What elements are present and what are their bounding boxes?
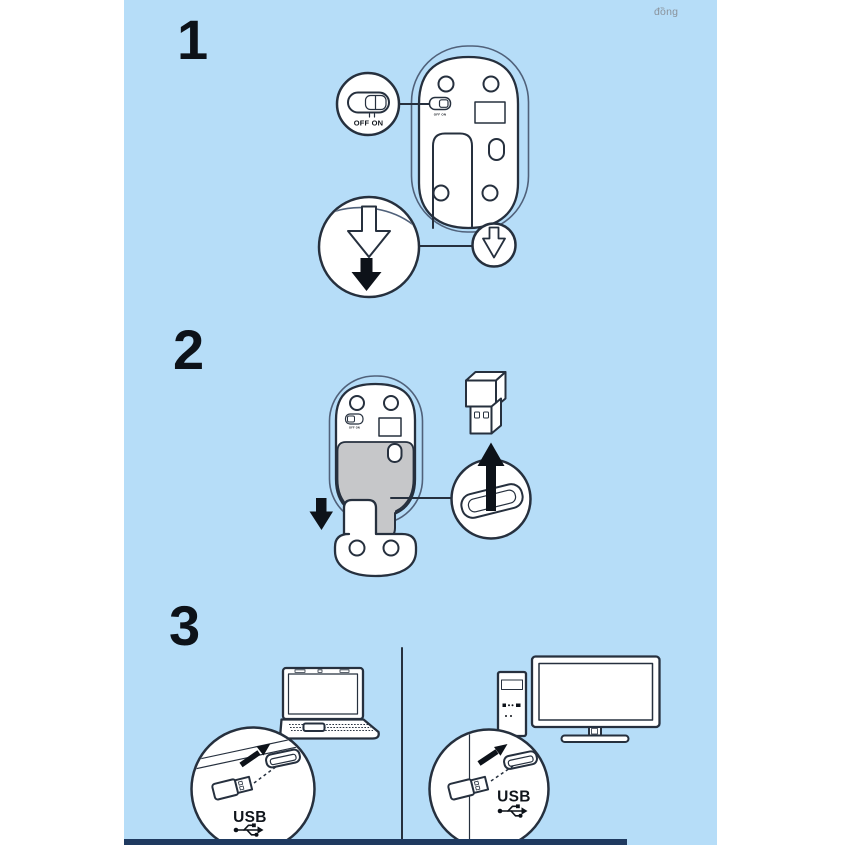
desktop-tower [498, 672, 526, 736]
desktop-usb-zoom-circle: USB [430, 729, 549, 845]
receiver-slot-zoom-circle [452, 443, 531, 539]
battery-tab-mini-circle [473, 224, 516, 267]
svg-text:OFF ON: OFF ON [434, 113, 447, 117]
mouse-bottom-view: OFF ON [412, 46, 529, 232]
step1-illustration: OFF ON OFF ON [319, 46, 529, 297]
sensor-window [388, 444, 402, 462]
monitor-stand-base [562, 736, 629, 743]
instruction-sheet: 1 2 3 OFF ON [0, 0, 845, 845]
illustrations: OFF ON OFF ON [0, 0, 845, 845]
footer-bar [124, 839, 627, 845]
down-arrow-icon [310, 498, 334, 530]
power-switch-zoom-circle: OFF ON [337, 73, 399, 135]
battery-cover [335, 500, 416, 576]
touchpad [304, 724, 325, 732]
laptop-usb-zoom-circle: USB [190, 728, 316, 845]
step2-illustration: OFF ON [310, 372, 531, 576]
battery-tab-zoom-circle [319, 197, 419, 297]
watermark-text: đồng [654, 6, 678, 18]
step3-illustration: USB [190, 648, 660, 845]
laptop-illustration [280, 668, 378, 739]
usb-receiver-3d [466, 372, 506, 434]
monitor [532, 657, 660, 743]
off-on-label: OFF ON [354, 119, 384, 128]
svg-text:OFF ON: OFF ON [349, 426, 360, 430]
usb-label: USB [497, 789, 531, 806]
usb-label: USB [233, 809, 267, 826]
